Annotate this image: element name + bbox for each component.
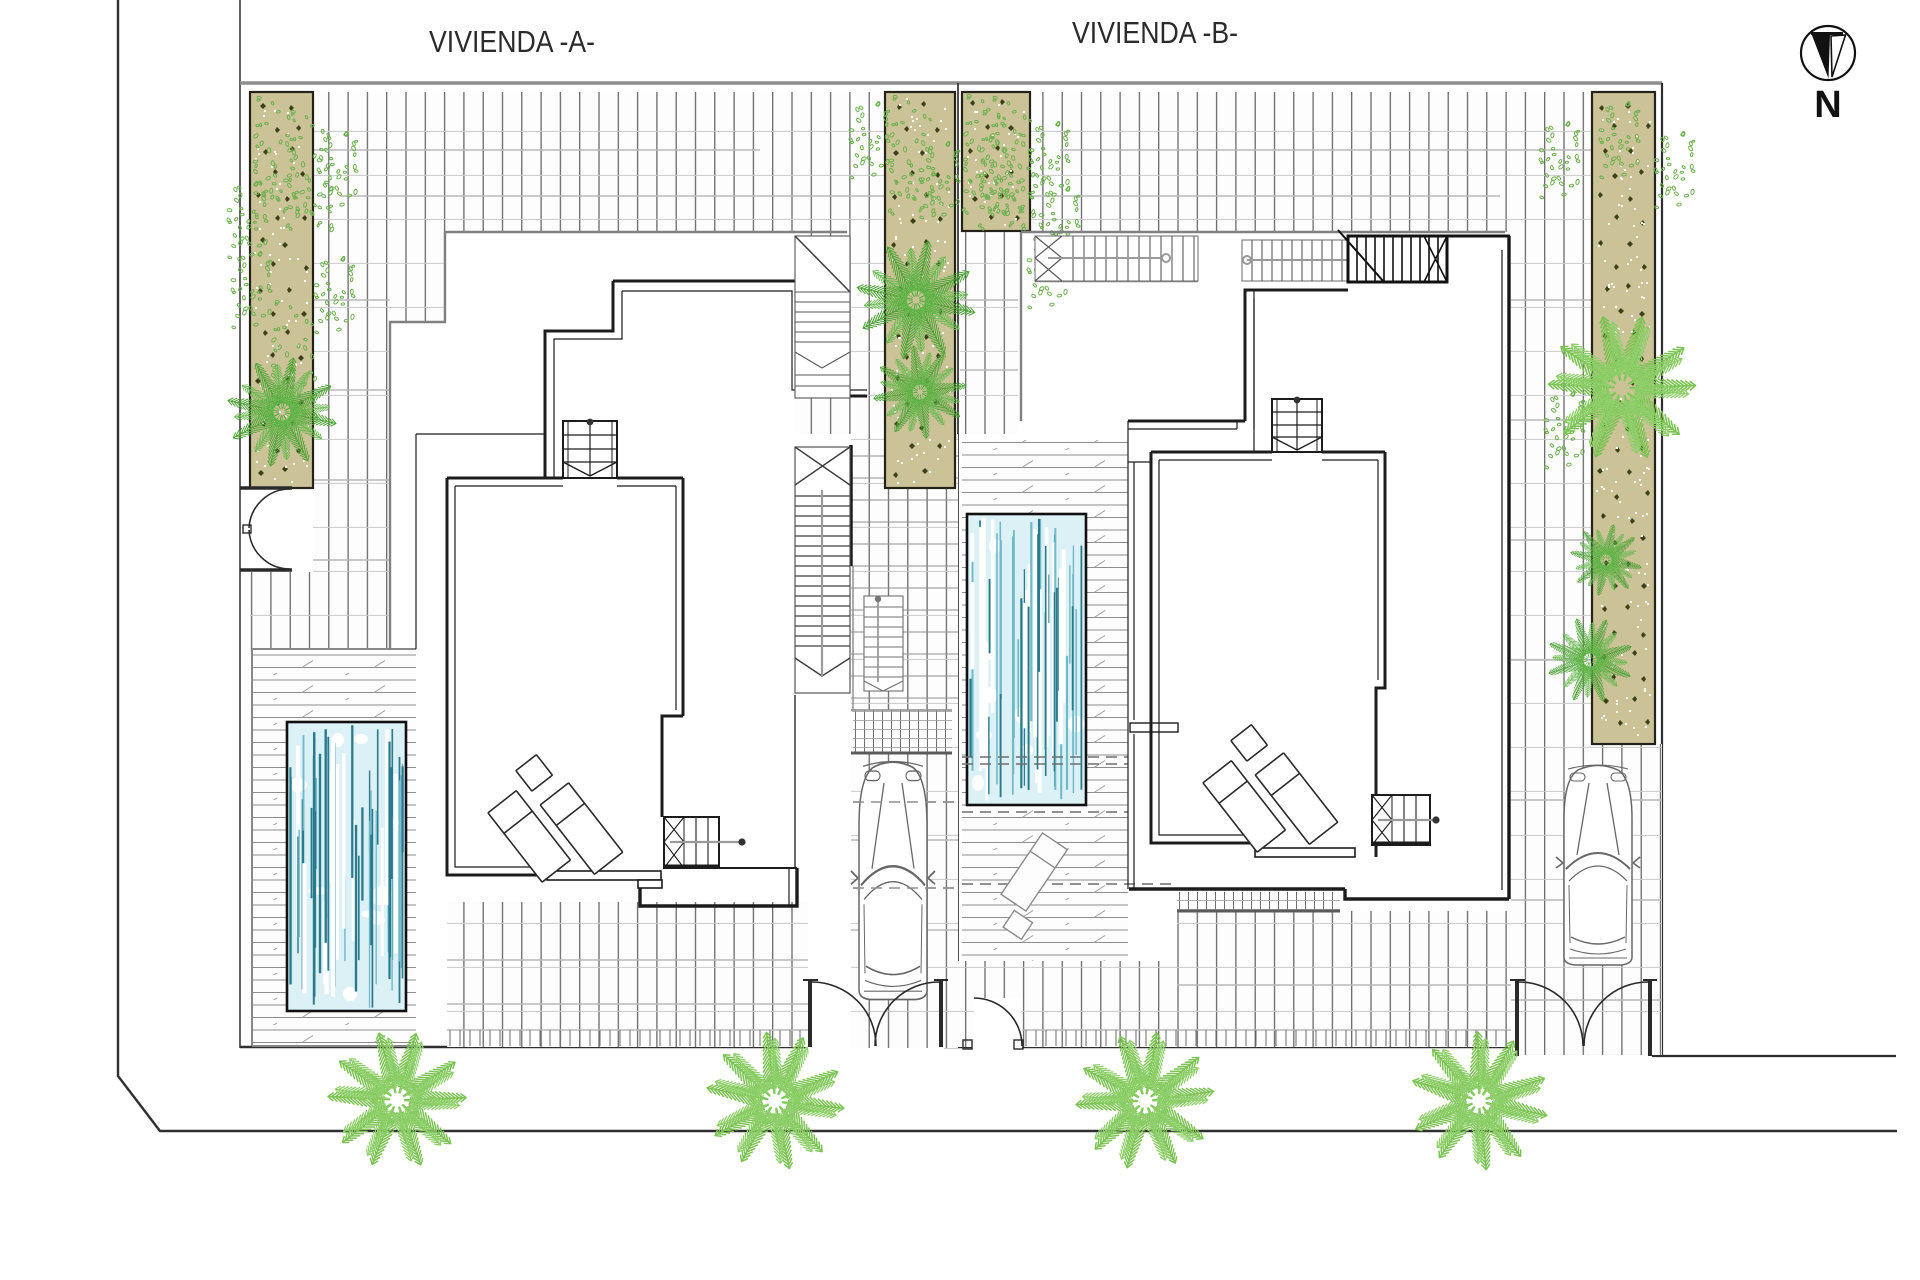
- svg-text:VIVIENDA -A-: VIVIENDA -A-: [429, 24, 595, 59]
- svg-text:N: N: [1814, 84, 1841, 126]
- svg-text:VIVIENDA -B-: VIVIENDA -B-: [1072, 15, 1238, 50]
